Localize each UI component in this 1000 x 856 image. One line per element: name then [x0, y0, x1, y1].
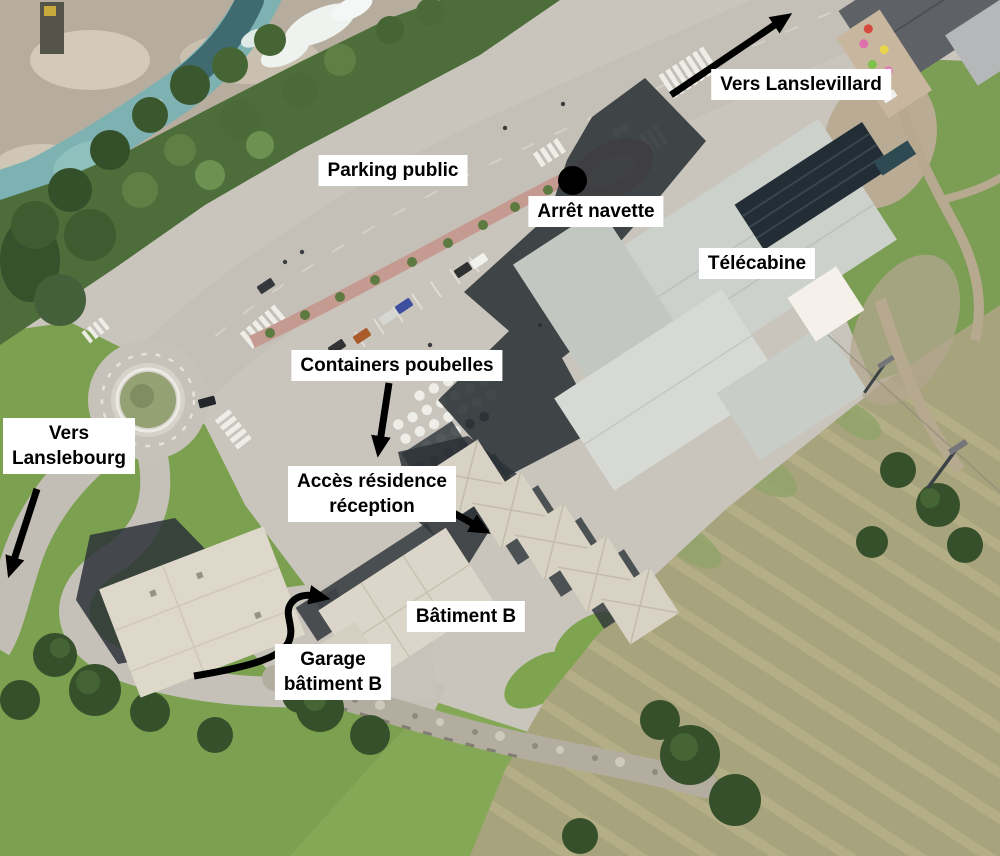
label-text: Containers poubelles [300, 355, 493, 376]
label-text-line2: bâtiment B [284, 672, 382, 697]
label-text: Parking public [328, 160, 459, 181]
label-garage-batiment-b: Garage bâtiment B [275, 644, 391, 700]
label-text-line2: réception [297, 494, 447, 519]
aerial-photo [0, 0, 1000, 856]
arret-navette-marker [558, 166, 587, 195]
label-acces-residence: Accès résidence réception [288, 466, 456, 522]
label-text: Bâtiment B [416, 606, 516, 627]
label-vers-lanslebourg: Vers Lanslebourg [3, 418, 135, 474]
label-containers-poubelles: Containers poubelles [291, 350, 502, 381]
label-parking-public: Parking public [319, 155, 468, 186]
label-text: Vers Lanslevillard [720, 74, 882, 95]
label-telecabine: Télécabine [699, 248, 815, 279]
label-text-line1: Vers [12, 421, 126, 446]
label-text-line1: Accès résidence [297, 469, 447, 494]
label-text: Télécabine [708, 253, 806, 274]
label-batiment-b: Bâtiment B [407, 601, 525, 632]
aerial-map: Vers Lanslevillard Parking public Arrêt … [0, 0, 1000, 856]
label-text: Arrêt navette [537, 201, 654, 222]
label-text-line2: Lanslebourg [12, 446, 126, 471]
label-vers-lanslevillard: Vers Lanslevillard [711, 69, 891, 100]
label-text-line1: Garage [284, 647, 382, 672]
label-arret-navette: Arrêt navette [528, 196, 663, 227]
